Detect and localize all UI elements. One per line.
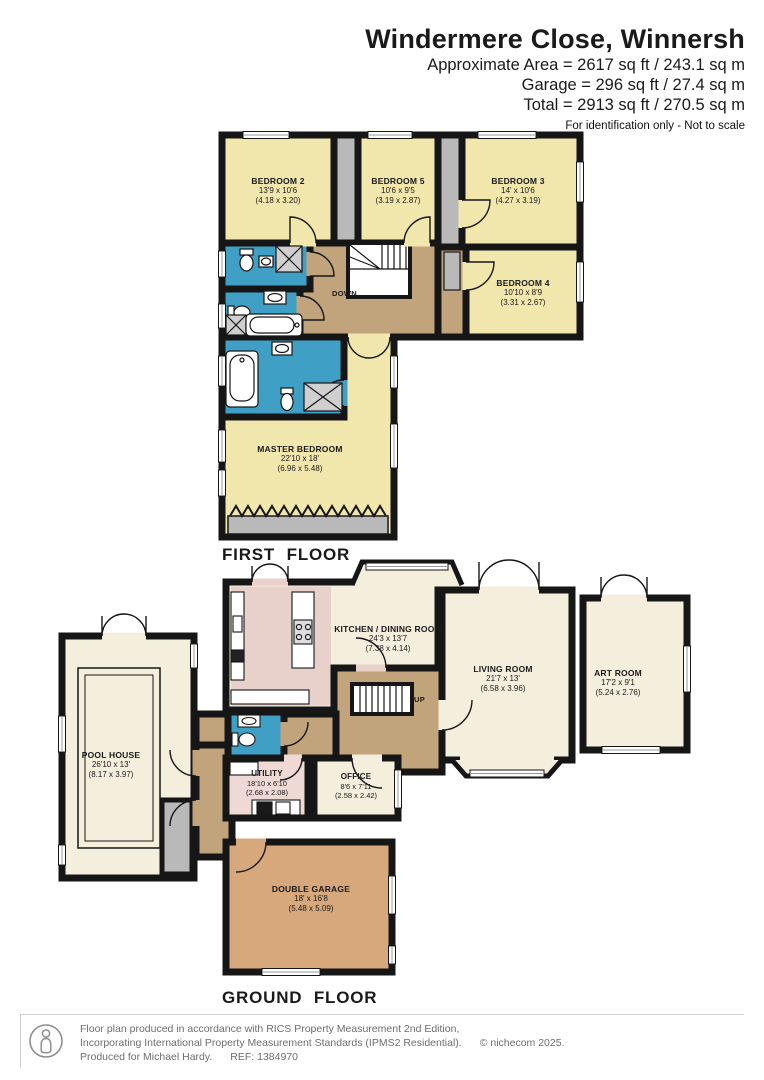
room-bedroom-2	[222, 135, 334, 243]
shower-icon	[276, 246, 302, 272]
bath-icon	[226, 351, 258, 407]
ground-floor-title: GROUND FLOOR	[222, 988, 377, 1008]
stairs-down-label: DOWN	[332, 289, 357, 298]
room-art	[583, 598, 687, 750]
bay-window	[452, 757, 562, 778]
footer-line2-row: Incorporating International Property Mea…	[80, 1036, 565, 1050]
kitchen-area	[231, 587, 331, 706]
disclaimer: For identification only - Not to scale	[365, 120, 745, 132]
room-garage	[226, 842, 392, 972]
stairs-up-label: UP	[414, 695, 425, 704]
store	[162, 800, 192, 874]
cupboard	[334, 135, 358, 243]
footer-line1: Floor plan produced in accordance with R…	[80, 1022, 565, 1036]
toilet-icon	[240, 249, 253, 271]
bay-window	[352, 562, 462, 587]
island-hob-icon	[292, 592, 314, 668]
footer: Floor plan produced in accordance with R…	[28, 1022, 565, 1064]
cupboard	[438, 135, 462, 247]
header: Windermere Close, Winnersh Approximate A…	[365, 24, 745, 132]
stairs-up	[352, 684, 412, 714]
room-bedroom-4	[466, 247, 580, 337]
shower-icon	[304, 383, 342, 411]
first-floor-title: FIRST FLOOR	[222, 545, 350, 565]
sink-icon	[259, 256, 273, 267]
garage-door	[262, 969, 320, 976]
toilet-icon	[281, 388, 293, 411]
floorplan-page: Windermere Close, Winnersh Approximate A…	[0, 0, 764, 1080]
bath-icon	[246, 314, 302, 336]
room-office	[314, 758, 398, 818]
approximate-area: Approximate Area = 2617 sq ft / 243.1 sq…	[365, 56, 745, 75]
page-title: Windermere Close, Winnersh	[365, 24, 745, 55]
sink-icon	[264, 291, 286, 304]
footer-divider	[20, 1014, 744, 1015]
total-area: Total = 2913 sq ft / 270.5 sq m	[365, 96, 745, 115]
garage-area: Garage = 296 sq ft / 27.4 sq m	[365, 76, 745, 95]
sink-icon	[238, 715, 260, 727]
room-living	[442, 590, 572, 760]
footer-line3: Produced for Michael Hardy.	[80, 1051, 212, 1063]
footer-divider-left	[20, 1014, 21, 1068]
footer-line3-row: Produced for Michael Hardy.REF: 1384970	[80, 1050, 565, 1064]
wardrobe	[444, 252, 460, 290]
footer-copyright: © nichecom 2025.	[480, 1037, 565, 1049]
toilet-icon	[232, 733, 255, 746]
person-logo-icon	[28, 1022, 64, 1060]
stairs-down	[348, 243, 410, 297]
room-bedroom-5	[358, 135, 438, 243]
footer-ref: REF: 1384970	[230, 1051, 298, 1063]
sink-icon	[272, 342, 292, 355]
floorplan-canvas	[0, 0, 764, 1080]
footer-line2: Incorporating International Property Mea…	[80, 1037, 462, 1049]
footer-text: Floor plan produced in accordance with R…	[80, 1022, 565, 1064]
shower-icon	[226, 315, 246, 335]
